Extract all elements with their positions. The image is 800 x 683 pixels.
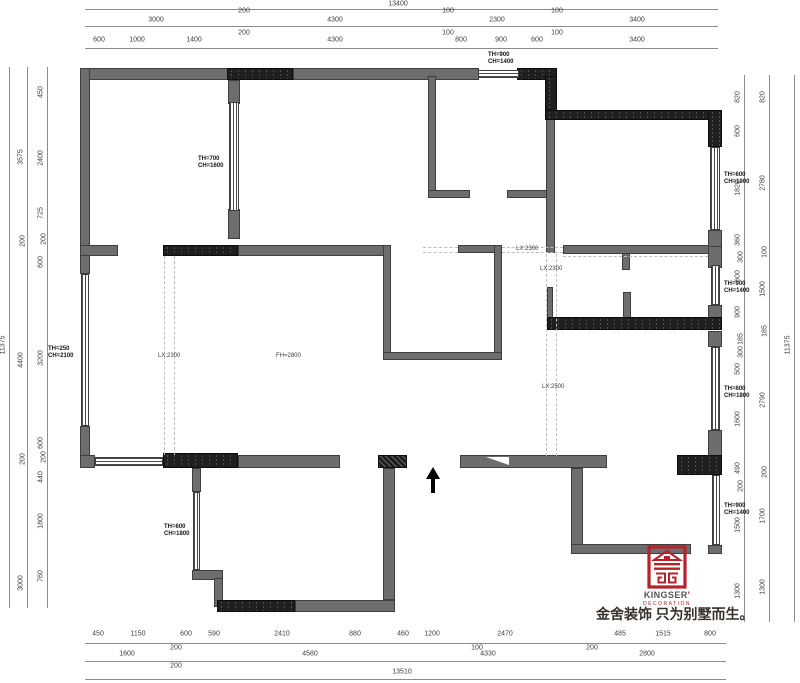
dimension-label: 185	[738, 333, 745, 345]
dimension-label: 600	[531, 37, 543, 44]
wall-height-annotation: TH=600 CH=1800	[724, 386, 750, 400]
brand-name-text: KINGSER	[644, 590, 688, 600]
beam-height-annotation: LX:2300	[158, 353, 180, 360]
wall-segment	[563, 245, 710, 254]
wall-segment	[708, 230, 722, 247]
dimension-label: 11375	[0, 336, 7, 355]
dimension-label: 4580	[302, 651, 318, 658]
dimension-line	[85, 26, 718, 27]
beam-height-annotation: FH=2800	[276, 353, 301, 360]
wall-height-annotation: TH=600 CH=1800	[164, 524, 190, 538]
dimension-line	[794, 75, 795, 622]
dimension-label: 900	[735, 306, 742, 318]
dimension-line	[85, 679, 726, 680]
dimension-label: 450	[92, 631, 104, 638]
dimension-label: 1500	[735, 517, 742, 533]
dimension-label: 185	[762, 325, 769, 337]
window-symbol	[95, 457, 163, 466]
dimension-label: 200	[762, 466, 769, 478]
wall-segment	[547, 287, 553, 320]
dimension-label: 800	[455, 37, 467, 44]
window-symbol	[229, 102, 239, 211]
wall-segment	[80, 245, 118, 256]
dimension-label: 725	[38, 207, 45, 219]
dimension-label: 2780	[760, 175, 767, 191]
dimension-label: 200	[738, 480, 745, 492]
wall-segment	[227, 68, 293, 80]
north-arrow-icon	[424, 467, 442, 500]
dimension-label: 600	[93, 37, 105, 44]
dimension-label: 4400	[18, 352, 25, 368]
dimension-label: 450	[38, 86, 45, 98]
wall-segment	[80, 455, 95, 468]
wall-height-annotation: TH=250 CH=2100	[48, 346, 74, 360]
window-symbol	[193, 492, 200, 570]
dimension-label: 600	[180, 631, 192, 638]
dimension-label: 1000	[129, 37, 145, 44]
beam-height-annotation: LX:2300	[516, 246, 538, 253]
dimension-label: 300	[738, 346, 745, 358]
dimension-label: 500	[735, 363, 742, 375]
dimension-label: 200	[41, 451, 48, 463]
dimension-label: 200	[586, 645, 598, 652]
dimension-label: 1300	[735, 583, 742, 599]
wall-segment	[163, 245, 238, 256]
wall-segment	[494, 245, 502, 360]
dimension-label: 800	[704, 631, 716, 638]
column-symbol	[378, 455, 407, 468]
dashed-removal-line	[556, 254, 557, 456]
dimension-label: 600	[38, 437, 45, 449]
dimension-label: 1800	[38, 513, 45, 529]
dimension-label: 820	[735, 91, 742, 103]
dashed-removal-line	[563, 256, 708, 257]
wall-segment	[428, 190, 470, 198]
floor-plan-canvas: 1340030002004300100230010034006001000140…	[0, 0, 800, 683]
wall-segment	[677, 455, 722, 475]
dimension-label: 300	[738, 251, 745, 263]
window-symbol	[712, 475, 720, 545]
wall-segment	[238, 455, 340, 468]
dimension-line	[85, 9, 718, 10]
window-symbol	[711, 347, 720, 430]
wall-segment	[623, 292, 631, 320]
window-symbol	[711, 265, 720, 305]
dimension-label: 600	[38, 256, 45, 268]
dimension-label: 2470	[497, 631, 513, 638]
wall-segment	[546, 119, 555, 253]
dimension-label: 11375	[785, 336, 792, 355]
dimension-label: 13400	[388, 1, 407, 8]
wall-segment	[163, 453, 238, 468]
dimension-label: 1500	[760, 281, 767, 297]
dimension-label: 200	[41, 233, 48, 245]
wall-segment	[295, 600, 395, 612]
dimension-label: 200	[20, 235, 27, 247]
dimension-label: 1300	[760, 579, 767, 595]
wall-height-annotation: TH=900 CH=1400	[724, 281, 750, 295]
wall-segment	[80, 68, 90, 248]
dimension-label: 3575	[18, 149, 25, 165]
wall-height-annotation: TH=700 CH=1600	[198, 156, 224, 170]
brand-slogan: 金舍装饰 只为别墅而生。	[596, 604, 754, 624]
wall-segment	[460, 455, 607, 468]
beam-height-annotation: LX:2300	[540, 266, 562, 273]
wall-segment	[228, 80, 240, 104]
wall-segment	[708, 331, 722, 347]
brand-name-mark: '	[688, 590, 691, 600]
dimension-label: 3400	[629, 17, 645, 24]
dimension-label: 13510	[392, 669, 411, 676]
dimension-label: 2800	[639, 651, 655, 658]
wall-segment	[545, 110, 722, 120]
dashed-removal-line	[546, 254, 547, 456]
dimension-label: 1515	[655, 631, 671, 638]
window-symbol	[478, 70, 519, 78]
dimension-label: 3000	[18, 575, 25, 591]
dimension-line	[9, 67, 10, 608]
dimension-label: 100	[442, 8, 454, 15]
wall-segment	[293, 68, 479, 80]
dimension-label: 1700	[760, 508, 767, 524]
window-symbol	[710, 147, 720, 230]
dimension-label: 200	[238, 30, 250, 37]
dimension-label: 2300	[489, 17, 505, 24]
dimension-label: 2410	[274, 631, 290, 638]
window-symbol	[81, 274, 89, 426]
dimension-label: 2790	[760, 392, 767, 408]
dimension-label: 1600	[119, 651, 135, 658]
dimension-label: 440	[38, 471, 45, 483]
wall-height-annotation: TH=900 CH=1400	[488, 52, 514, 66]
wall-segment	[238, 245, 390, 256]
dimension-label: 490	[735, 462, 742, 474]
dimension-label: 460	[397, 631, 409, 638]
brand-name: KINGSER'	[641, 590, 693, 600]
dimension-label: 4300	[327, 37, 343, 44]
dimension-label: 4300	[327, 17, 343, 24]
dimension-label: 360	[735, 234, 742, 246]
dimension-label: 600	[735, 125, 742, 137]
wall-segment	[192, 468, 201, 492]
dimension-label: 1600	[735, 411, 742, 427]
dimension-label: 3200	[38, 350, 45, 366]
wall-segment	[428, 76, 436, 198]
dimension-label: 200	[170, 663, 182, 670]
dimension-label: 760	[38, 570, 45, 582]
dimension-line	[47, 67, 48, 608]
beam-height-annotation: LX:2500	[542, 384, 564, 391]
wall-segment	[383, 352, 502, 360]
wall-height-annotation: TH=600 CH=1800	[724, 172, 750, 186]
dimension-label: 4330	[480, 651, 496, 658]
dimension-label: 1400	[186, 37, 202, 44]
wall-segment	[507, 190, 547, 198]
wall-height-annotation: TH=900 CH=1400	[724, 503, 750, 517]
wall-segment	[383, 468, 395, 600]
dimension-line	[85, 48, 718, 49]
dimension-label: 880	[349, 631, 361, 638]
dashed-removal-line	[423, 247, 458, 248]
wall-segment	[708, 430, 722, 456]
wall-segment	[228, 209, 240, 239]
dimension-label: 485	[614, 631, 626, 638]
brand-logo: KINGSER' DECORATION	[641, 545, 693, 607]
dashed-removal-line	[423, 252, 458, 253]
wall-segment	[217, 600, 295, 612]
dimension-label: 1200	[424, 631, 440, 638]
dimension-line	[769, 75, 770, 622]
dimension-label: 900	[495, 37, 507, 44]
dimension-label: 2400	[38, 150, 45, 166]
dimension-label: 100	[762, 246, 769, 258]
dimension-label: 200	[170, 645, 182, 652]
wall-segment	[708, 110, 722, 147]
dimension-label: 1150	[130, 631, 145, 638]
wall-segment	[547, 317, 722, 330]
dimension-label: 100	[551, 8, 563, 15]
dimension-label: 3000	[148, 17, 164, 24]
dimension-label: 590	[208, 631, 220, 638]
dimension-label: 100	[551, 30, 563, 37]
dimension-label: 3400	[629, 37, 645, 44]
wall-segment	[708, 545, 722, 554]
brand-seal-icon	[647, 545, 687, 589]
dimension-label: 820	[760, 91, 767, 103]
wall-segment	[85, 68, 230, 80]
dimension-line	[27, 67, 28, 608]
dimension-label: 100	[442, 30, 454, 37]
dimension-label: 200	[20, 453, 27, 465]
door-swing-symbol	[486, 457, 509, 465]
wall-segment	[571, 468, 583, 546]
wall-segment	[383, 245, 391, 360]
dimension-label: 200	[238, 8, 250, 15]
